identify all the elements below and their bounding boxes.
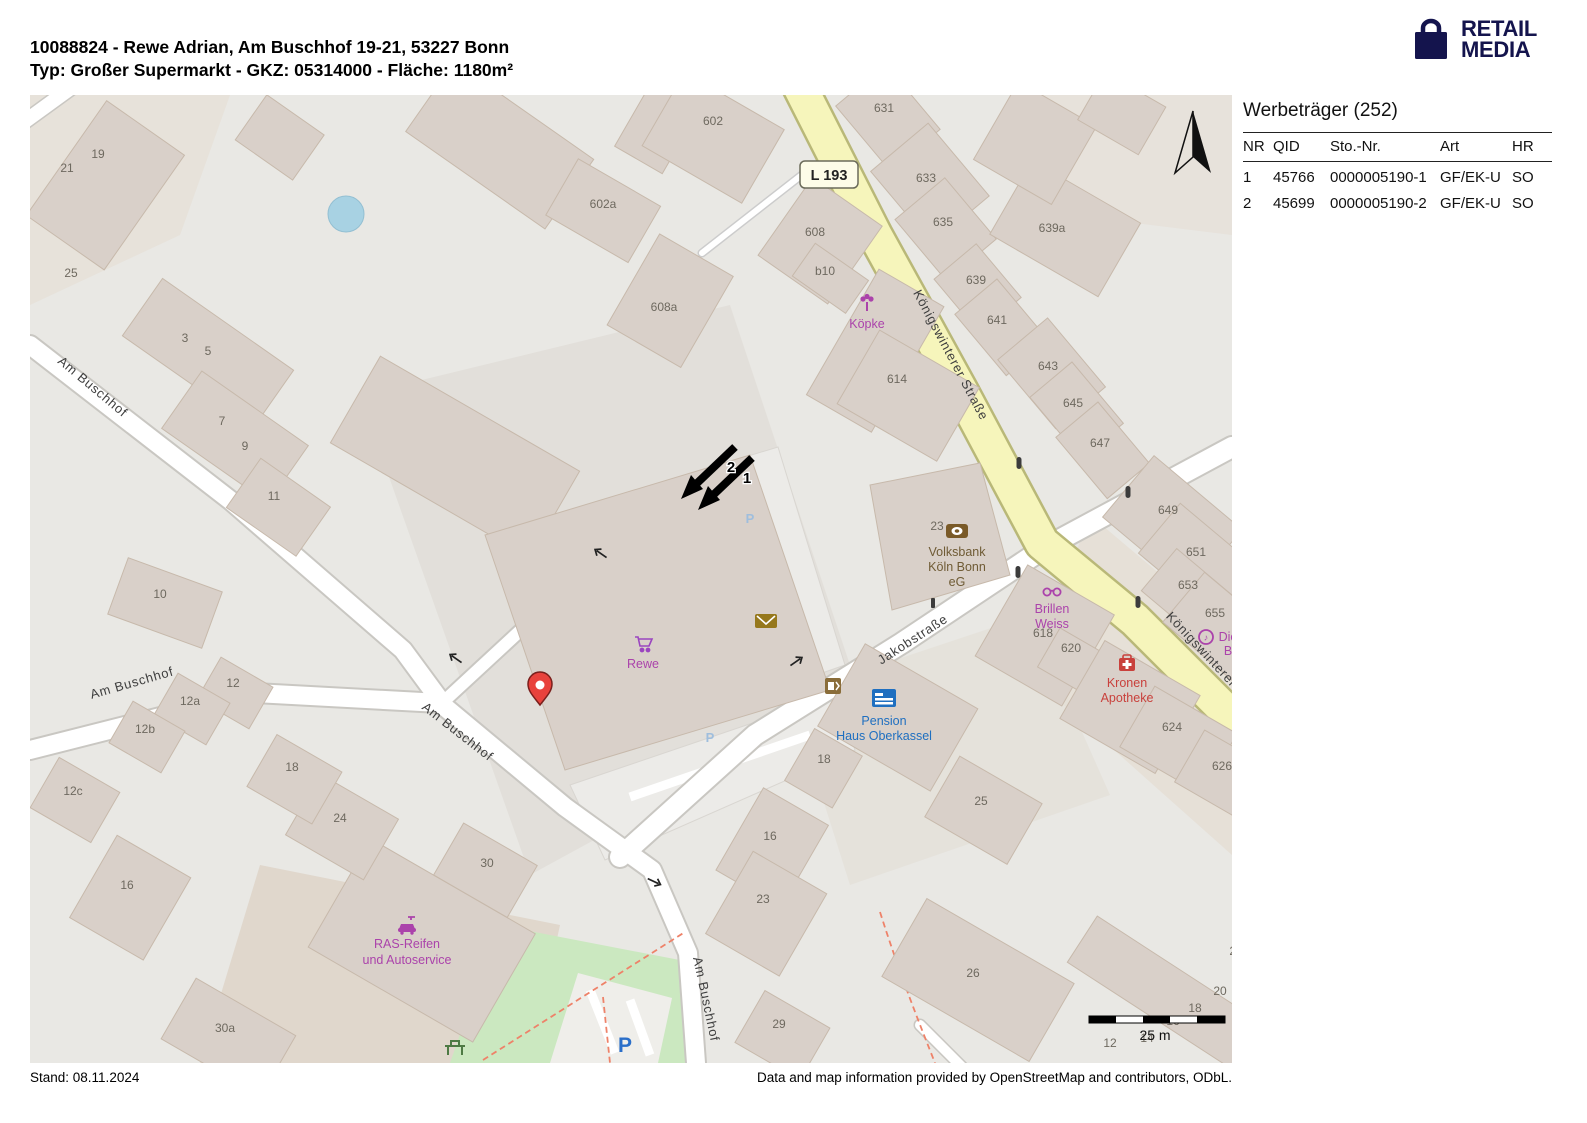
svg-text:♪: ♪ — [1204, 633, 1209, 643]
hotel-bed-icon — [872, 689, 896, 707]
house-number: 641 — [987, 313, 1007, 327]
house-number: 29 — [772, 1017, 786, 1031]
page-title: 10088824 - Rewe Adrian, Am Buschhof 19-2… — [30, 36, 513, 82]
house-number: 3 — [182, 331, 189, 345]
house-number: 624 — [1162, 720, 1182, 734]
poi-label-volksbank-3: eG — [949, 575, 966, 589]
marker-1-label: 1 — [743, 470, 751, 487]
poi-label-b: B — [1224, 644, 1232, 658]
house-number: 614 — [887, 372, 907, 386]
panel-title: Werbeträger (252) — [1243, 100, 1563, 122]
atm-icon — [825, 678, 841, 694]
poi-label-volksbank-1: Volksbank — [929, 545, 987, 559]
table-row-2-nr: 2 — [1243, 188, 1273, 214]
stand-date: Stand: 08.11.2024 — [30, 1070, 139, 1085]
col-header-art: Art — [1440, 132, 1512, 162]
buildings — [30, 95, 1232, 1063]
house-number: 639 — [966, 273, 986, 287]
post-box-icon — [755, 614, 777, 628]
logo-text: RETAIL MEDIA — [1461, 18, 1537, 60]
poi-label-rewe: Rewe — [627, 657, 659, 671]
house-number: 602a — [590, 197, 617, 211]
poi-label-die: Die — [1219, 630, 1232, 644]
poi-label-brillen: Brillen — [1035, 602, 1070, 616]
house-number: 16 — [120, 878, 134, 892]
house-number: 20 — [1213, 984, 1227, 998]
house-number: 18 — [285, 760, 299, 774]
marker-2-label: 2 — [727, 459, 735, 476]
table-row-1-qid: 45766 — [1273, 162, 1330, 188]
house-number: 645 — [1063, 396, 1083, 410]
house-number: 12 — [1103, 1036, 1117, 1050]
house-number: 30 — [480, 856, 494, 870]
werbetraeger-panel: Werbeträger (252) NR QID Sto.-Nr. Art HR… — [1243, 100, 1563, 214]
house-number: 633 — [916, 171, 936, 185]
house-number: 626 — [1212, 759, 1232, 773]
parking-icon: P — [706, 730, 715, 745]
house-number: 16 — [763, 829, 777, 843]
house-number: 5 — [205, 344, 212, 358]
house-number: 19 — [91, 147, 105, 161]
logo-line1: RETAIL — [1461, 18, 1537, 39]
road-badge-text: L 193 — [811, 168, 848, 184]
house-number: 22 — [1229, 944, 1232, 958]
werbetraeger-table: NR QID Sto.-Nr. Art HR 1 45766 000000519… — [1243, 132, 1563, 214]
report-page: 10088824 - Rewe Adrian, Am Buschhof 19-2… — [0, 0, 1587, 1123]
table-row-2-art: GF/EK-U — [1440, 188, 1512, 214]
house-number: 643 — [1038, 359, 1058, 373]
house-number: 653 — [1178, 578, 1198, 592]
col-header-nr: NR — [1243, 132, 1273, 162]
retail-media-logo: RETAIL MEDIA — [1408, 16, 1537, 62]
table-row-2-stonr: 0000005190-2 — [1330, 188, 1440, 214]
house-number: 30a — [215, 1021, 235, 1035]
table-row-1-art: GF/EK-U — [1440, 162, 1512, 188]
house-number: 608 — [805, 225, 825, 239]
table-row-1-nr: 1 — [1243, 162, 1273, 188]
house-number: 639a — [1039, 221, 1066, 235]
shopping-bag-icon — [1408, 16, 1454, 62]
table-row-1-hr: SO — [1512, 162, 1552, 188]
poi-label-ras-1: RAS-Reifen — [374, 937, 440, 951]
house-number: 7 — [219, 414, 226, 428]
house-number: 11 — [268, 489, 281, 503]
poi-label-haus-oberkassel: Haus Oberkassel — [836, 729, 932, 743]
pond — [328, 196, 364, 232]
parking-icon: P — [746, 511, 755, 526]
title-line1: 10088824 - Rewe Adrian, Am Buschhof 19-2… — [30, 36, 513, 59]
table-row-1-stonr: 0000005190-1 — [1330, 162, 1440, 188]
house-number: 631 — [874, 101, 894, 115]
house-number: 25 — [974, 794, 988, 808]
house-number: 18 — [1188, 1001, 1202, 1015]
house-number: 23 — [756, 892, 770, 906]
poi-label-volksbank-2: Köln Bonn — [928, 560, 986, 574]
scale-label: 25 m — [1139, 1027, 1170, 1043]
house-number: 602 — [703, 114, 723, 128]
house-number: 620 — [1061, 641, 1081, 655]
col-header-hr: HR — [1512, 132, 1552, 162]
osm-attribution: Data and map information provided by Ope… — [430, 1070, 1232, 1085]
table-row-2-hr: SO — [1512, 188, 1552, 214]
house-number: 9 — [242, 439, 249, 453]
house-number: 12c — [63, 784, 82, 798]
house-number: 10 — [153, 587, 167, 601]
title-line2: Typ: Großer Supermarkt - GKZ: 05314000 -… — [30, 59, 513, 82]
house-number: 24 — [333, 811, 347, 825]
poi-label-apotheke: Apotheke — [1101, 691, 1154, 705]
map-canvas: Am Buschhof Am Buschhof Am Buschhof Am B… — [30, 95, 1232, 1063]
col-header-stonr: Sto.-Nr. — [1330, 132, 1440, 162]
house-number: 26 — [966, 966, 980, 980]
house-number: 18 — [817, 752, 831, 766]
road-badge-l193: L 193 — [800, 161, 858, 188]
house-number: 647 — [1090, 436, 1110, 450]
logo-line2: MEDIA — [1461, 39, 1537, 60]
poi-label-ras-2: und Autoservice — [363, 953, 452, 967]
house-number: 21 — [60, 161, 74, 175]
bank-icon — [946, 524, 968, 538]
house-number: 649 — [1158, 503, 1178, 517]
table-row-2-qid: 45699 — [1273, 188, 1330, 214]
house-number: 25 — [64, 266, 78, 280]
house-number: b10 — [815, 264, 835, 278]
poi-label-koepke: Köpke — [849, 317, 884, 331]
poi-label-kronen: Kronen — [1107, 676, 1147, 690]
house-number: 23 — [930, 519, 944, 533]
house-number: 651 — [1186, 545, 1206, 559]
house-number: 655 — [1205, 606, 1225, 620]
house-number: 12b — [135, 722, 155, 736]
poi-label-pension: Pension — [861, 714, 906, 728]
house-number: 12 — [226, 676, 240, 690]
parking-icon: P — [618, 1034, 632, 1057]
house-number: 12a — [180, 694, 200, 708]
poi-label-weiss: Weiss — [1035, 617, 1069, 631]
street-label-am-buschhof: Am Buschhof — [88, 664, 175, 702]
col-header-qid: QID — [1273, 132, 1330, 162]
house-number: 635 — [933, 215, 953, 229]
house-number: 608a — [651, 300, 678, 314]
